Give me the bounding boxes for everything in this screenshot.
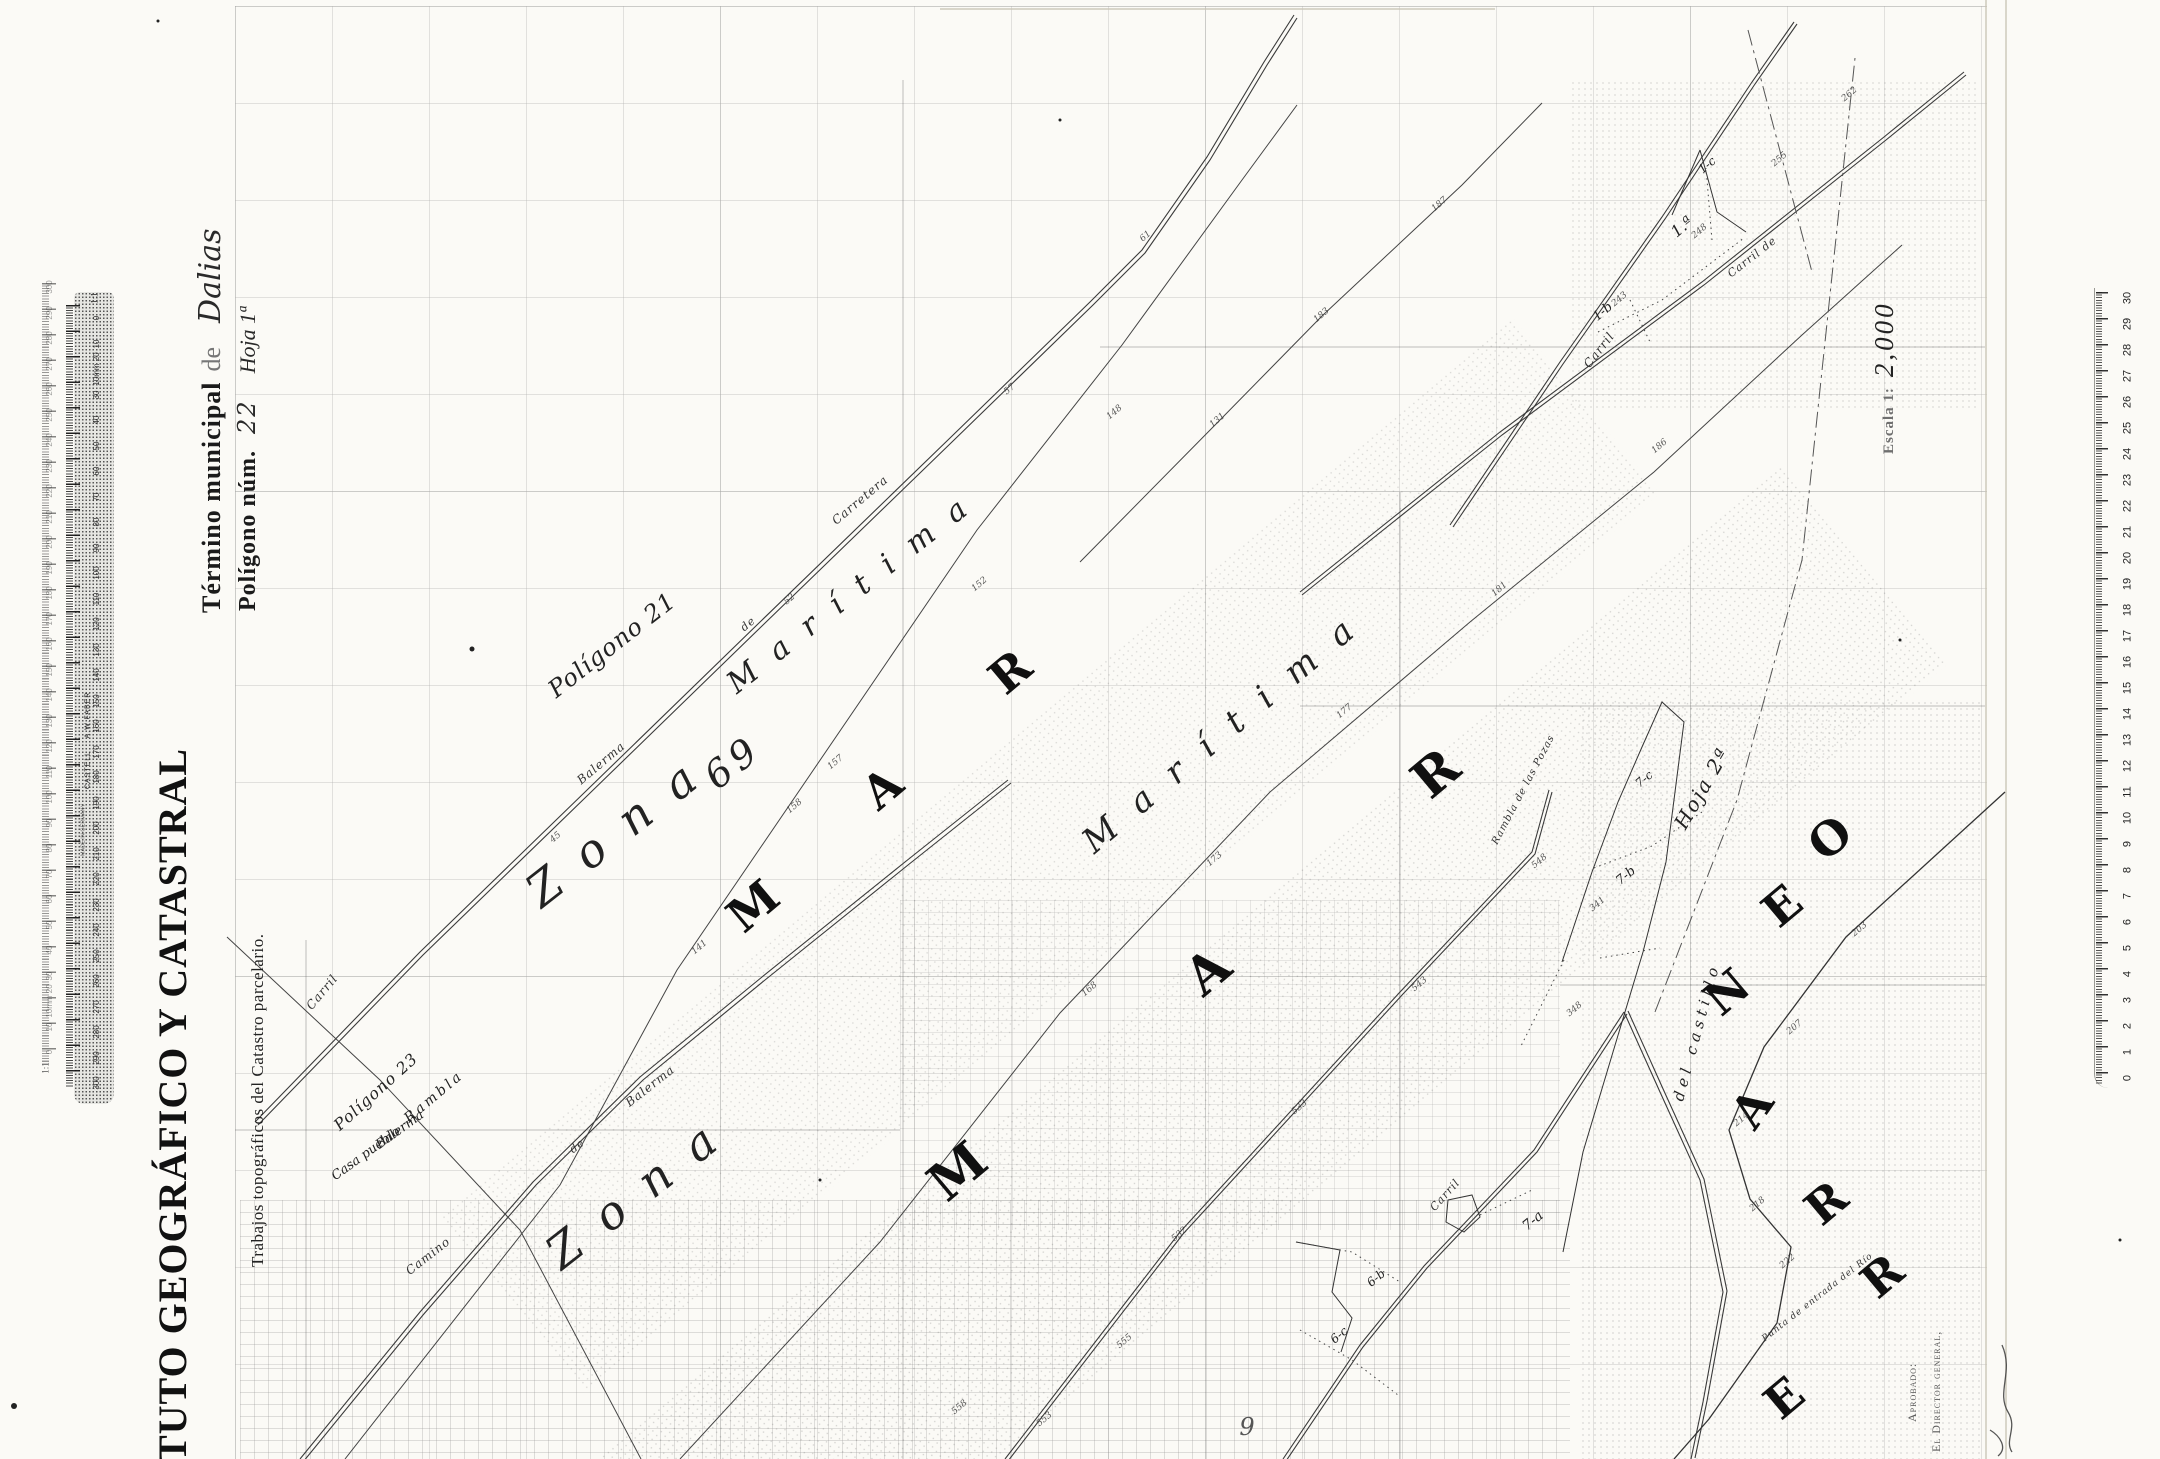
coastline xyxy=(1674,792,2005,1459)
scanned-cadastral-map-sheet: Polígono 21Zona69MarítimaZonaMarítimaPol… xyxy=(0,0,2160,1459)
ruler-brand-castell: CASTELL xyxy=(85,751,92,789)
approval-label: Aprobado: xyxy=(1905,1363,1920,1422)
termino-label: Término municipal xyxy=(197,381,226,613)
termino-municipal-heading: Término municipaldeDalias xyxy=(193,229,228,613)
ruler-brand: A.W.FABER xyxy=(85,692,92,739)
termino-de: de xyxy=(197,347,226,372)
institution-subtitle: Trabajos topográficos del Catastro parce… xyxy=(248,934,268,1267)
ruler-scale-ratio-bottom: 1:1 xyxy=(42,1062,51,1074)
poligono-heading: Polígono núm.22Hoja 1ª xyxy=(233,307,262,611)
scale-note: Escala 1:2,000 xyxy=(1869,301,1900,454)
ruler-made-in: MADE IN GERMANY xyxy=(81,804,87,856)
sheet-edge-lines xyxy=(940,0,2006,1459)
termino-value-handwritten: Dalias xyxy=(193,229,228,323)
roads-double-line xyxy=(255,15,1966,1459)
sheet-division-lines xyxy=(1655,30,1855,1012)
parcel-outlines xyxy=(1296,150,1746,1352)
scale-label: Escala 1: xyxy=(1881,387,1897,454)
scale-value-handwritten: 2,000 xyxy=(1869,301,1899,377)
poligono-value-handwritten: 22 xyxy=(233,399,261,434)
right-ruler-tick-comb xyxy=(2096,292,2110,1084)
approval-director-line: El Director general, xyxy=(1929,1331,1944,1452)
ruler-tick-comb-right xyxy=(66,305,82,1087)
signature-scribble xyxy=(1990,1345,2012,1456)
hoja-value-handwritten: Hoja 1ª xyxy=(235,307,260,374)
map-label-9: 9 xyxy=(1239,1415,1254,1439)
institution-title: INSTITUTO GEOGRÁFICO Y CATASTRAL xyxy=(149,748,196,1459)
ruler-scale-ratio-top: 1:1 xyxy=(91,292,100,304)
map-linework xyxy=(0,0,2160,1459)
ruler-tick-comb-left xyxy=(42,283,58,1065)
poligono-label: Polígono núm. xyxy=(235,450,261,611)
